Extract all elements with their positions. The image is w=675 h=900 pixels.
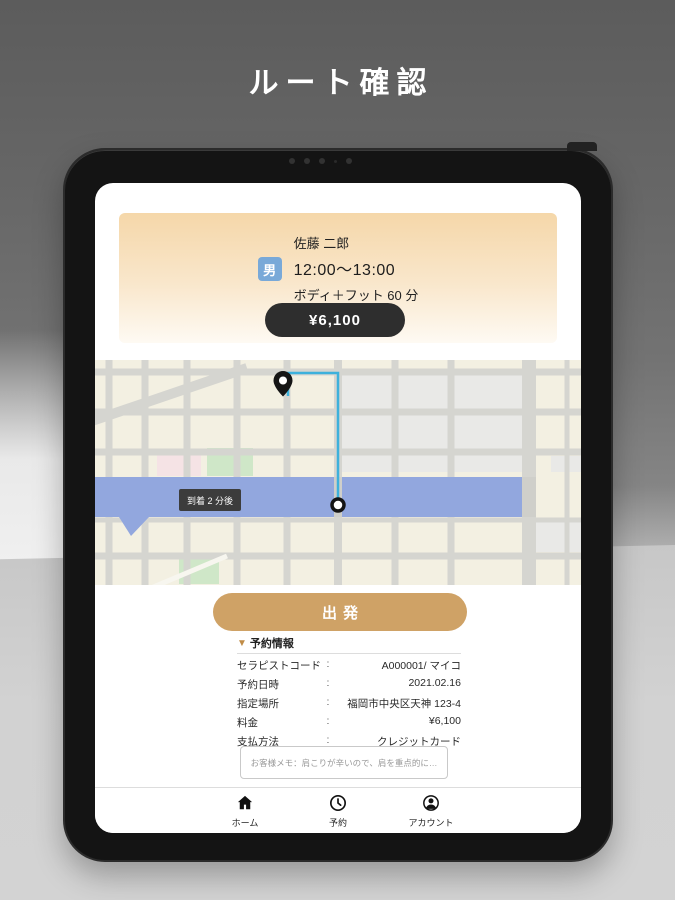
destination-marker-icon — [332, 499, 344, 511]
route-map[interactable]: 到着 2 分後 — [95, 360, 581, 585]
triangle-marker-icon: ▼ — [237, 638, 247, 649]
map-canvas — [95, 360, 581, 585]
app-screen: 男 佐藤 二郎 12:00〜13:00 ボディ＋フット 60 分 ¥6,100 — [95, 183, 581, 833]
clock-icon — [328, 793, 348, 813]
account-icon — [421, 793, 441, 813]
row-label: 料金 — [237, 715, 321, 730]
tablet-frame: 男 佐藤 二郎 12:00〜13:00 ボディ＋フット 60 分 ¥6,100 — [63, 148, 613, 862]
reservation-info-title: 予約情報 — [250, 635, 294, 651]
row-label: 予約日時 — [237, 677, 321, 692]
customer-name: 佐藤 二郎 — [294, 233, 419, 252]
reservation-table: セラピストコード : A000001/ マイコ 予約日時 : 2021.02.1… — [237, 653, 461, 749]
row-value: 福岡市中央区天神 123-4 — [335, 696, 461, 711]
price-pill: ¥6,100 — [265, 303, 405, 337]
tab-home[interactable]: ホーム — [221, 788, 269, 833]
row-label: セラピストコード — [237, 658, 321, 673]
row-value: ¥6,100 — [335, 715, 461, 730]
arrival-tooltip: 到着 2 分後 — [179, 489, 241, 511]
booking-summary-card: 男 佐藤 二郎 12:00〜13:00 ボディ＋フット 60 分 ¥6,100 — [119, 213, 557, 343]
service-name: ボディ＋フット 60 分 — [294, 285, 419, 304]
tab-account-label: アカウント — [408, 816, 453, 829]
row-value: A000001/ マイコ — [335, 658, 461, 673]
tab-reservations[interactable]: 予約 — [314, 788, 362, 833]
reservation-info-header[interactable]: ▼ 予約情報 — [237, 635, 294, 651]
depart-button[interactable]: 出発 — [213, 593, 467, 631]
tab-account[interactable]: アカウント — [407, 788, 455, 833]
bottom-tab-bar: ホーム 予約 アカウント — [95, 788, 581, 833]
tab-reservations-label: 予約 — [329, 816, 347, 829]
row-label: 指定場所 — [237, 696, 321, 711]
home-icon — [235, 793, 255, 813]
tab-home-label: ホーム — [232, 816, 259, 829]
gender-badge: 男 — [258, 257, 282, 281]
tablet-power-button — [567, 142, 597, 151]
booking-time-range: 12:00〜13:00 — [294, 256, 419, 280]
page-title: ルート確認 — [0, 58, 675, 102]
row-value: 2021.02.16 — [335, 677, 461, 692]
customer-memo-box: お客様メモ：肩こりが辛いので、肩を重点的に… — [240, 746, 448, 779]
front-camera-array — [289, 156, 415, 166]
